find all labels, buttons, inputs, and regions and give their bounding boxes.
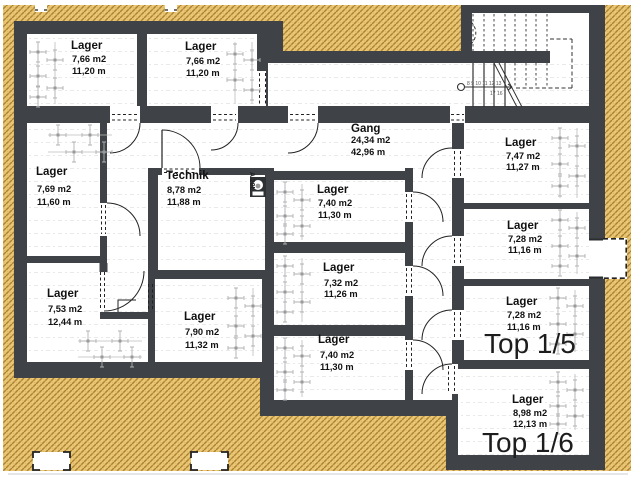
svg-text:Lager: Lager [512, 394, 544, 406]
svg-text:17 16: 17 16 [490, 91, 503, 97]
svg-text:7,32 m2: 7,32 m2 [324, 278, 358, 288]
svg-text:11,88 m: 11,88 m [167, 197, 201, 207]
svg-text:7,53 m2: 7,53 m2 [48, 304, 82, 314]
svg-text:Gang: Gang [351, 123, 380, 135]
svg-text:11,16 m: 11,16 m [508, 245, 542, 255]
svg-text:8,78 m2: 8,78 m2 [167, 185, 201, 195]
svg-text:7,66 m2: 7,66 m2 [72, 54, 106, 64]
svg-text:7,66 m2: 7,66 m2 [186, 56, 220, 66]
svg-text:Top 1/5: Top 1/5 [484, 328, 576, 359]
svg-text:Lager: Lager [317, 184, 349, 196]
svg-text:7,40 m2: 7,40 m2 [320, 350, 354, 360]
svg-text:Lager: Lager [505, 137, 537, 149]
svg-text:8,98 m2: 8,98 m2 [513, 408, 547, 418]
svg-text:Lager: Lager [323, 262, 355, 274]
svg-text:11,60 m: 11,60 m [37, 197, 71, 207]
svg-text:24,34 m2: 24,34 m2 [351, 135, 390, 145]
svg-text:11,32 m: 11,32 m [185, 340, 219, 350]
svg-text:12,44 m: 12,44 m [48, 317, 82, 327]
svg-text:11,27 m: 11,27 m [506, 162, 540, 172]
svg-text:Lager: Lager [507, 220, 539, 232]
svg-text:7,69 m2: 7,69 m2 [37, 184, 71, 194]
svg-text:Lager: Lager [184, 311, 216, 323]
svg-text:11,20 m: 11,20 m [186, 68, 220, 78]
svg-text:Lager: Lager [47, 288, 79, 300]
svg-text:Lager: Lager [318, 334, 350, 346]
svg-text:Lager: Lager [71, 40, 103, 52]
svg-text:Lager: Lager [185, 41, 217, 53]
svg-text:7,28 m2: 7,28 m2 [507, 310, 541, 320]
svg-text:Lager: Lager [506, 296, 538, 308]
svg-text:A 20L: A 20L [248, 172, 255, 192]
svg-text:8 9 10 11 12 13: 8 9 10 11 12 13 [467, 81, 502, 87]
svg-text:11,20 m: 11,20 m [72, 66, 106, 76]
svg-text:11,30 m: 11,30 m [318, 210, 352, 220]
svg-text:7,28 m2: 7,28 m2 [508, 234, 542, 244]
svg-text:42,96 m: 42,96 m [351, 147, 385, 157]
svg-text:7,47 m2: 7,47 m2 [506, 151, 540, 161]
svg-text:11,26 m: 11,26 m [324, 289, 358, 299]
svg-text:Top 1/6: Top 1/6 [482, 427, 574, 458]
svg-text:7,90 m2: 7,90 m2 [185, 327, 219, 337]
svg-text:11,30 m: 11,30 m [320, 362, 354, 372]
svg-text:Technik: Technik [166, 170, 209, 182]
svg-text:Lager: Lager [36, 166, 68, 178]
svg-text:7,40 m2: 7,40 m2 [318, 198, 352, 208]
